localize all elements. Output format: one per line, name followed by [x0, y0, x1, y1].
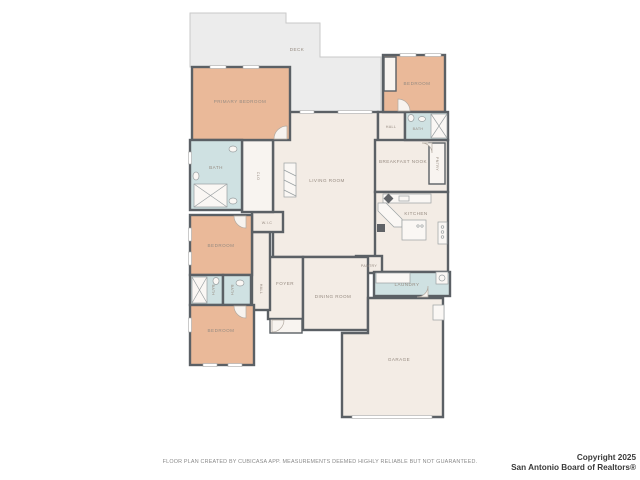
room-label-bedroom-top-right: BEDROOM [404, 81, 431, 86]
room-label-foyer: FOYER [276, 281, 294, 286]
window [189, 152, 192, 164]
room-label-primary-bedroom: PRIMARY BEDROOM [214, 99, 267, 104]
window [400, 54, 416, 57]
room-label-bath-left: BATH [211, 285, 215, 296]
toilet-icon [408, 115, 414, 122]
cooktop-icon [438, 222, 447, 244]
copyright-line1: Copyright 2025 [577, 453, 637, 462]
window [203, 364, 217, 367]
room-label-wic: W.I.C [262, 221, 273, 225]
window [210, 66, 226, 69]
toilet-icon [213, 278, 219, 285]
room-label-hall-bath: BATH [413, 127, 424, 131]
kitchen-sink-icon [399, 196, 409, 201]
room-label-primary-bath: BATH [209, 165, 223, 170]
kitchen-island [402, 220, 426, 240]
room-label-dining-room: DINING ROOM [315, 294, 352, 299]
room-label-pantry-closet: PNTRY [435, 157, 439, 171]
room-hall-lower [252, 232, 270, 310]
shower-icon [194, 184, 227, 207]
copyright-line2: San Antonio Board of Realtors® [511, 463, 636, 472]
room-label-garage: GARAGE [388, 357, 410, 362]
window [243, 66, 259, 69]
room-foyer [268, 257, 303, 319]
window [300, 111, 314, 114]
window [425, 54, 441, 57]
window [189, 228, 192, 241]
floor-plan-canvas: DECK PRIMARY BEDROOM BATH CLO LIVING ROO… [0, 0, 640, 480]
room-label-living-room: LIVING ROOM [309, 178, 345, 183]
room-label-kitchen: KITCHEN [404, 211, 427, 216]
room-label-bedroom-middle: BEDROOM [208, 243, 235, 248]
appliance-icon [377, 224, 385, 232]
room-label-pantry: PANTRY [361, 264, 378, 268]
sink-icon [229, 146, 237, 152]
sink-icon [419, 117, 426, 122]
room-label-bedroom-bottom: BEDROOM [208, 328, 235, 333]
toilet-icon [193, 172, 199, 180]
shower-icon [192, 277, 207, 303]
fireplace [284, 163, 296, 197]
sink-icon [229, 198, 237, 204]
room-label-hall-upper: HALL [386, 125, 396, 129]
bedroom-top-right-closet [384, 57, 396, 91]
room-label-deck: DECK [290, 47, 305, 52]
room-label-bath-right: BATH [230, 285, 234, 296]
room-label-closet: CLO [256, 172, 260, 180]
window [189, 252, 192, 265]
room-bath-right [223, 275, 251, 305]
disclaimer-text: FLOOR PLAN CREATED BY CUBICASA APP. MEAS… [163, 459, 478, 465]
garage-door [352, 416, 432, 419]
room-label-laundry: LAUNDRY [394, 282, 419, 287]
shower-icon [431, 114, 447, 138]
window [228, 364, 242, 367]
room-label-breakfast-nook: BREAKFAST NOOK [379, 159, 428, 164]
sink-icon [236, 280, 244, 286]
room-label-hall-lower: HALL [259, 284, 263, 294]
deck-slider-opening [338, 111, 372, 114]
window [189, 318, 192, 332]
washer-icon [436, 272, 448, 284]
water-heater-icon [433, 305, 444, 320]
